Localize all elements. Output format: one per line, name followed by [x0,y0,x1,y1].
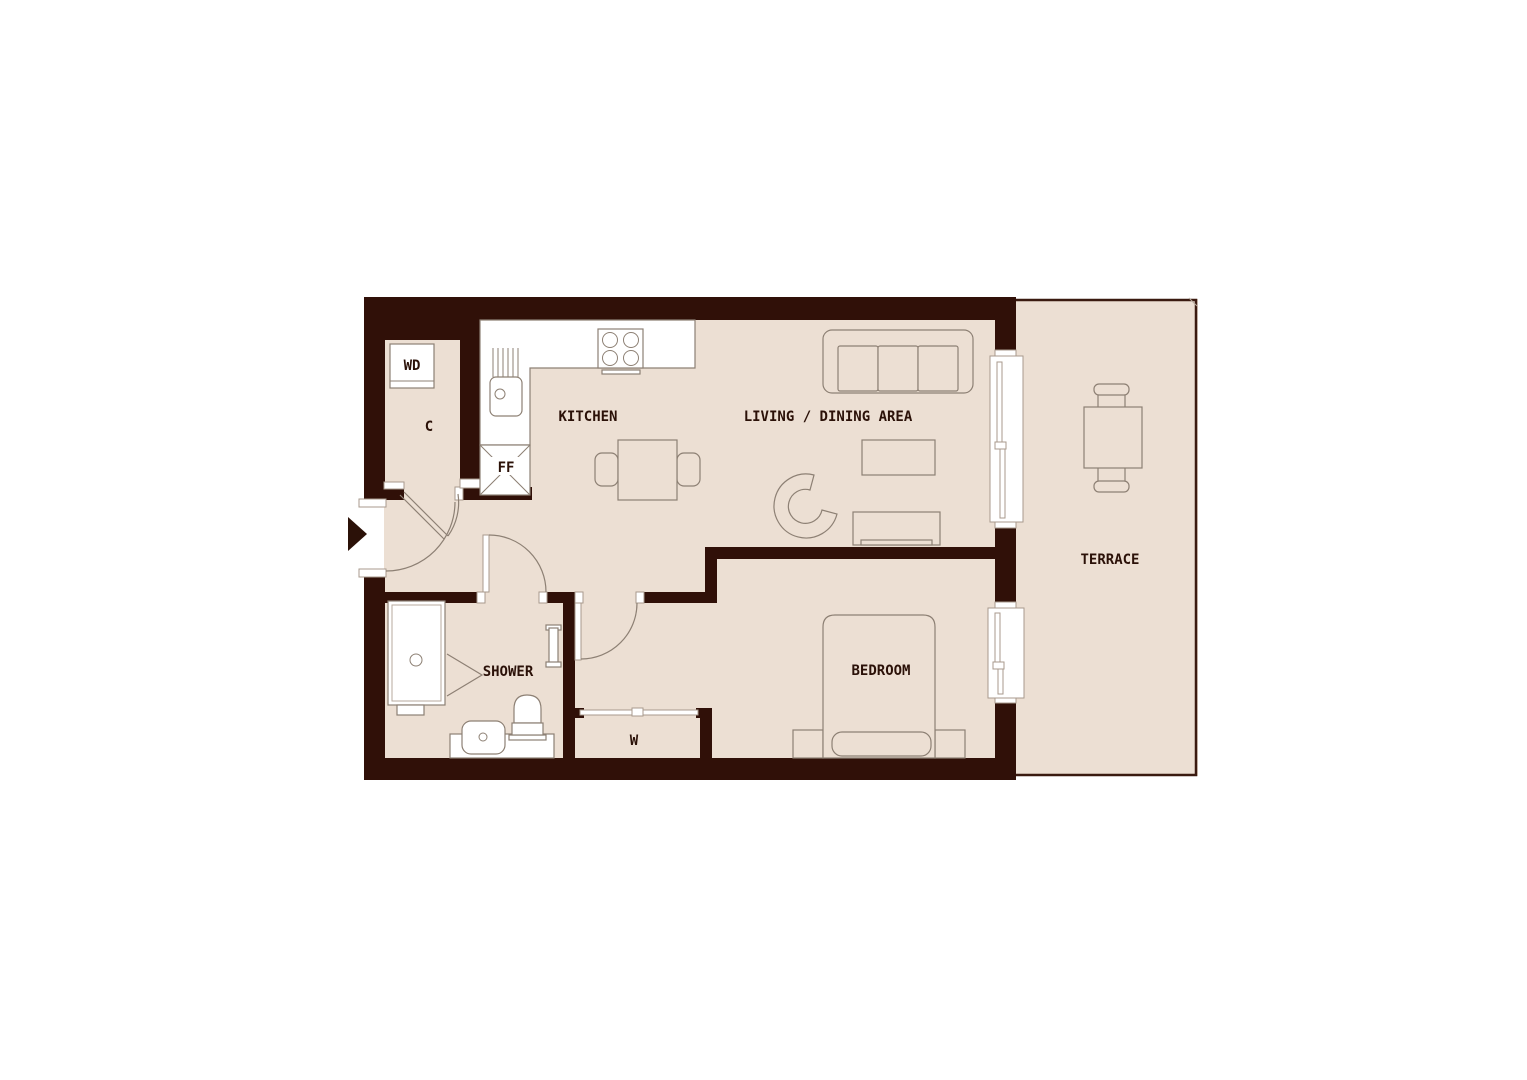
wall-top [364,297,1016,320]
entry-arrow-icon [348,517,367,551]
label-kitchen: KITCHEN [558,409,617,425]
label-living-dining: LIVING / DINING AREA [744,409,913,425]
wall-wardrobe-right [700,708,712,758]
sofa [823,330,973,393]
terrace-floor [1016,299,1198,776]
floor-plan-canvas: WD C KITCHEN FF LIVING / DINING AREA TER… [0,0,1527,1080]
shower-tray [388,601,445,715]
terrace-chair-bottom [1094,466,1129,492]
wall-closet-right [460,318,480,488]
door-jamb [359,569,386,577]
wall-left-lower [364,571,385,780]
label-shower: SHOWER [483,664,534,680]
label-washer-dryer: WD [404,358,421,374]
label-terrace: TERRACE [1080,552,1139,568]
label-wardrobe: W [630,733,639,749]
wall-right-1 [995,297,1016,358]
nightstand-right [935,730,965,758]
door-jamb [539,592,547,603]
terrace-table [1084,407,1142,468]
dining-chair-left [595,453,618,486]
wall-bottom [364,758,1016,780]
tv-unit [853,512,940,545]
wall-bedroom-top [710,547,995,559]
door-jamb [575,592,583,603]
pillow [832,732,931,756]
label-closet: C [425,419,433,435]
wall-left-upper [364,297,385,503]
wall-shower-right [563,600,575,758]
label-bedroom: BEDROOM [851,663,910,679]
terrace-chair-top [1094,384,1129,410]
wall-right-3 [995,697,1016,780]
door-jamb [477,592,485,603]
coffee-table [862,440,935,475]
dining-chair-right [677,453,700,486]
label-fridge-freezer: FF [498,460,515,476]
hob [598,329,643,374]
door-jamb [636,592,644,603]
window-bedroom [988,608,1024,698]
door-jamb [460,479,480,488]
nightstand-left [793,730,823,758]
dining-table [618,440,677,500]
wall-right-2 [995,522,1016,609]
door-jamb [359,499,386,507]
window-living [990,356,1023,522]
door-jamb [384,482,404,489]
floor-plan: WD C KITCHEN FF LIVING / DINING AREA TER… [0,0,1527,1080]
basin [462,721,505,754]
